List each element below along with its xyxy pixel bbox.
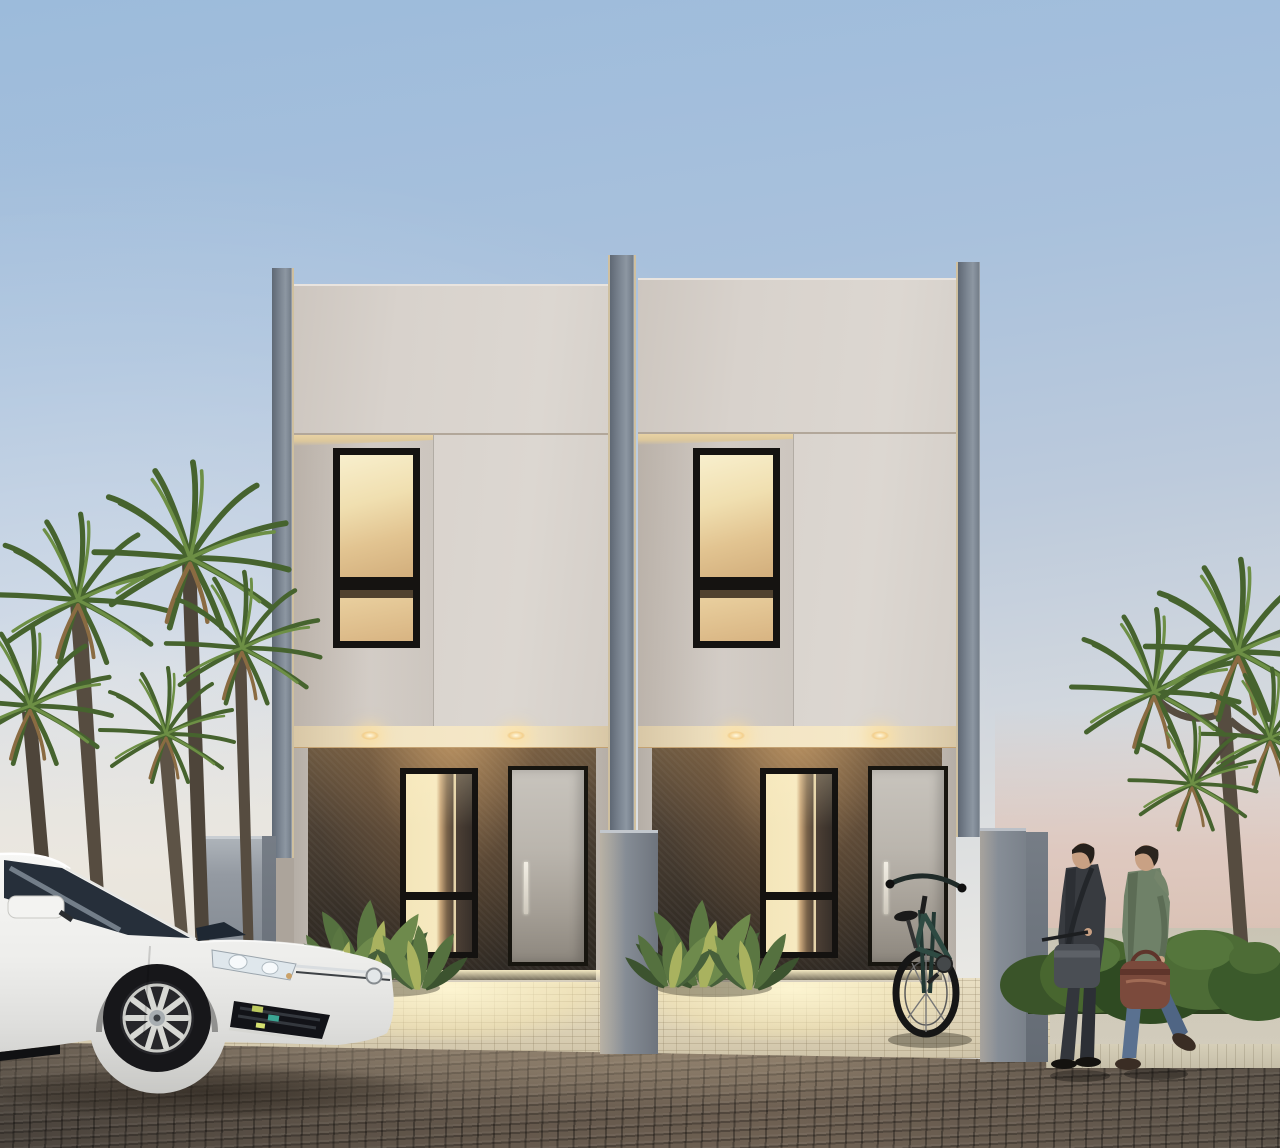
bicycle xyxy=(886,876,973,1048)
man-dark-coat xyxy=(1042,843,1106,1069)
figures xyxy=(0,0,1280,1148)
pedestrians xyxy=(1042,843,1199,1082)
man-green-jacket xyxy=(1115,845,1199,1070)
scene xyxy=(0,0,1280,1148)
